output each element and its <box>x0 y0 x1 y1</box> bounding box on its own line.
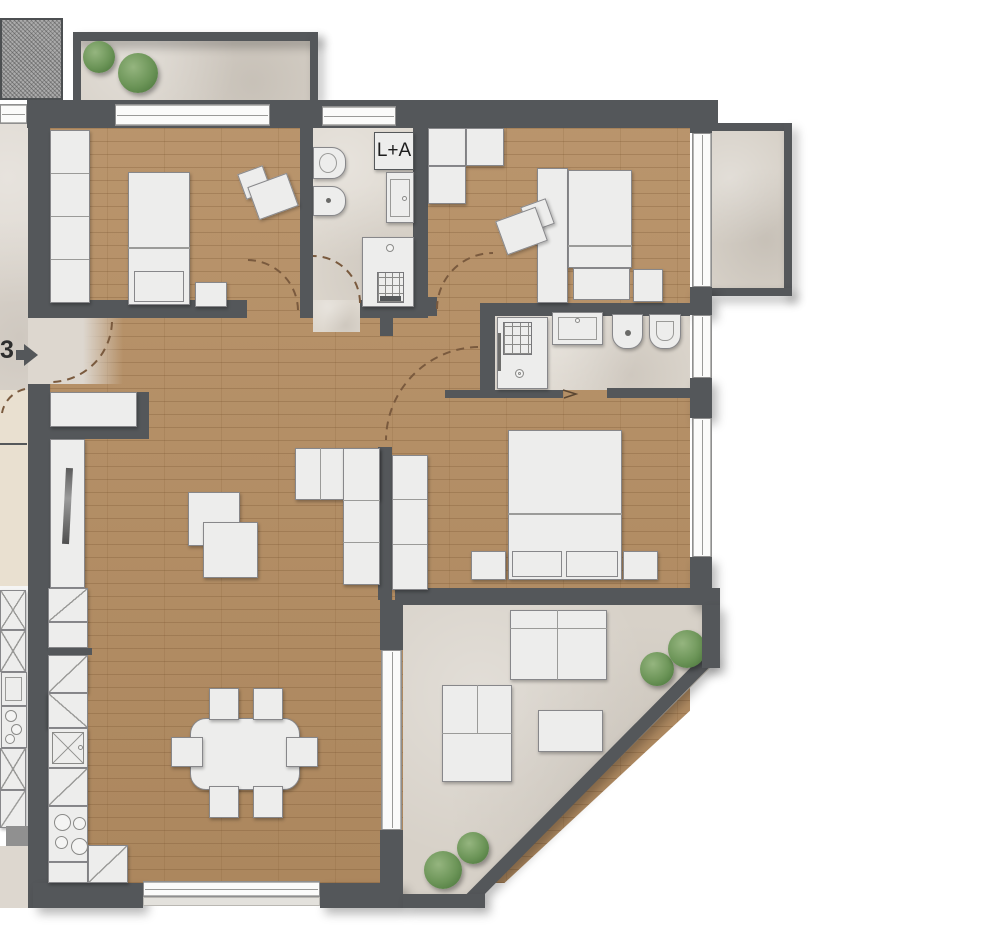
pillow <box>573 268 630 300</box>
wall <box>413 128 428 318</box>
wall <box>690 287 712 315</box>
wall <box>33 883 143 908</box>
neighbor-burner <box>11 724 22 735</box>
plant <box>668 630 706 668</box>
toilet-bowl <box>656 321 674 341</box>
dining-chair <box>253 786 283 818</box>
terrace-lounger-line <box>510 628 607 629</box>
kitchen-counter-edge <box>48 648 92 655</box>
wardrobe-module <box>428 166 466 204</box>
sofa-cushion-line <box>320 448 321 500</box>
neighbor-burner <box>5 734 15 744</box>
pillow <box>512 551 562 577</box>
neighbor-kitchen-sink-basin <box>5 677 22 701</box>
wardrobe <box>392 455 428 590</box>
wall <box>73 32 318 41</box>
nightstand <box>195 282 227 307</box>
washbasin-faucet <box>402 196 407 201</box>
bed-linen-line <box>508 513 622 515</box>
wall <box>378 447 392 600</box>
pillow <box>134 271 184 302</box>
burner <box>55 836 68 849</box>
gravel-shaft <box>0 18 63 100</box>
window <box>692 133 712 287</box>
wall <box>712 123 792 131</box>
terrace-daybed-line <box>477 685 478 733</box>
washing-machine-bar <box>380 296 401 301</box>
dining-chair <box>253 688 283 720</box>
plant <box>83 41 115 73</box>
dining-chair <box>209 786 239 818</box>
coffee-table <box>203 522 258 578</box>
floor-plan: L+A <box>0 0 1000 950</box>
burner <box>54 814 71 831</box>
kitchen-unit <box>48 768 88 806</box>
single-bed <box>568 170 632 268</box>
pillow <box>566 551 618 577</box>
window <box>692 418 712 557</box>
dining-table <box>190 718 300 790</box>
entry-closet-counter <box>50 392 137 427</box>
dining-chair <box>286 737 318 767</box>
wall <box>300 128 313 318</box>
neighbor-kitchen-unit <box>0 748 26 790</box>
kitchen-corner-unit <box>88 845 128 883</box>
burner <box>71 838 88 855</box>
entrance-arrow-icon <box>16 344 40 366</box>
nightstand <box>471 551 506 580</box>
wall <box>137 392 149 439</box>
shower-panel <box>503 322 532 355</box>
wardrobe-module <box>428 128 466 166</box>
wall <box>28 100 50 318</box>
kitchen-unit <box>48 655 88 693</box>
sofa-cushion-line <box>343 542 380 543</box>
bidet-drain <box>326 198 331 203</box>
laundry-door-threshold <box>313 300 360 332</box>
terrace-lounger-line <box>557 610 558 680</box>
dining-chair <box>209 688 239 720</box>
nightstand <box>633 269 663 302</box>
neighbor-kitchen-unit <box>0 790 26 828</box>
neighbor-kitchen-unit <box>0 590 26 630</box>
window <box>0 104 27 124</box>
entrance-arrow-head <box>24 344 38 366</box>
wall <box>690 100 712 133</box>
top-terrace-floor <box>81 40 310 100</box>
neighbor-burner <box>5 710 17 722</box>
wall <box>380 830 403 883</box>
neighbor-floor-bottom <box>0 846 28 908</box>
terrace-lounger <box>510 610 607 680</box>
neighbor-apartment-floor <box>0 390 28 586</box>
laundry-label: L+A <box>377 140 411 161</box>
kitchen-sink-faucet <box>78 745 83 750</box>
washing-machine-knob <box>386 244 394 252</box>
neighbor-gray-wedge <box>6 826 28 846</box>
wall <box>428 297 437 316</box>
wall <box>712 288 792 296</box>
kitchen-unit <box>48 862 88 883</box>
kitchen-unit <box>48 622 88 648</box>
wall <box>403 894 485 908</box>
plant <box>457 832 489 864</box>
entrance-floor-patch <box>28 318 128 384</box>
wall <box>50 427 149 439</box>
plant <box>118 53 158 93</box>
wardrobe <box>50 130 90 303</box>
window-sill <box>143 897 320 906</box>
wall <box>310 32 318 100</box>
dining-chair <box>171 737 203 767</box>
plant <box>424 851 462 889</box>
shower-drain <box>515 369 524 378</box>
entrance-arrow-stem <box>16 350 24 360</box>
terrace-table <box>538 710 603 752</box>
wall <box>607 388 690 398</box>
window <box>692 315 712 378</box>
wall <box>380 312 393 336</box>
wall <box>690 378 712 418</box>
kitchen-unit <box>48 693 88 728</box>
window <box>322 106 396 126</box>
bathroom-sink-faucet <box>575 318 580 323</box>
wall <box>73 32 81 100</box>
toilet-bowl <box>319 153 337 173</box>
wall <box>445 390 563 398</box>
wardrobe-module <box>466 128 504 166</box>
wall <box>480 303 495 398</box>
balcony-floor <box>712 131 784 288</box>
kitchen-unit <box>48 588 88 622</box>
sofa-cushion-line <box>343 500 380 501</box>
bed-linen-line <box>568 245 632 247</box>
laundry-label-box: L+A <box>374 132 414 170</box>
shower-door <box>498 333 501 371</box>
window <box>381 650 402 830</box>
window <box>115 104 270 126</box>
burner <box>73 817 86 830</box>
window <box>143 881 320 897</box>
sofa <box>343 448 380 585</box>
washbasin-bowl <box>390 179 410 217</box>
wall <box>28 384 50 908</box>
bidet-drain <box>625 330 631 336</box>
nightstand <box>623 551 658 580</box>
wall <box>395 588 720 605</box>
wall <box>702 605 720 668</box>
wall <box>320 883 403 908</box>
neighbor-kitchen-unit <box>0 630 26 672</box>
bed-linen-line <box>128 247 190 249</box>
wall <box>380 600 403 650</box>
terrace-daybed-line <box>442 733 512 734</box>
wall <box>784 123 792 296</box>
